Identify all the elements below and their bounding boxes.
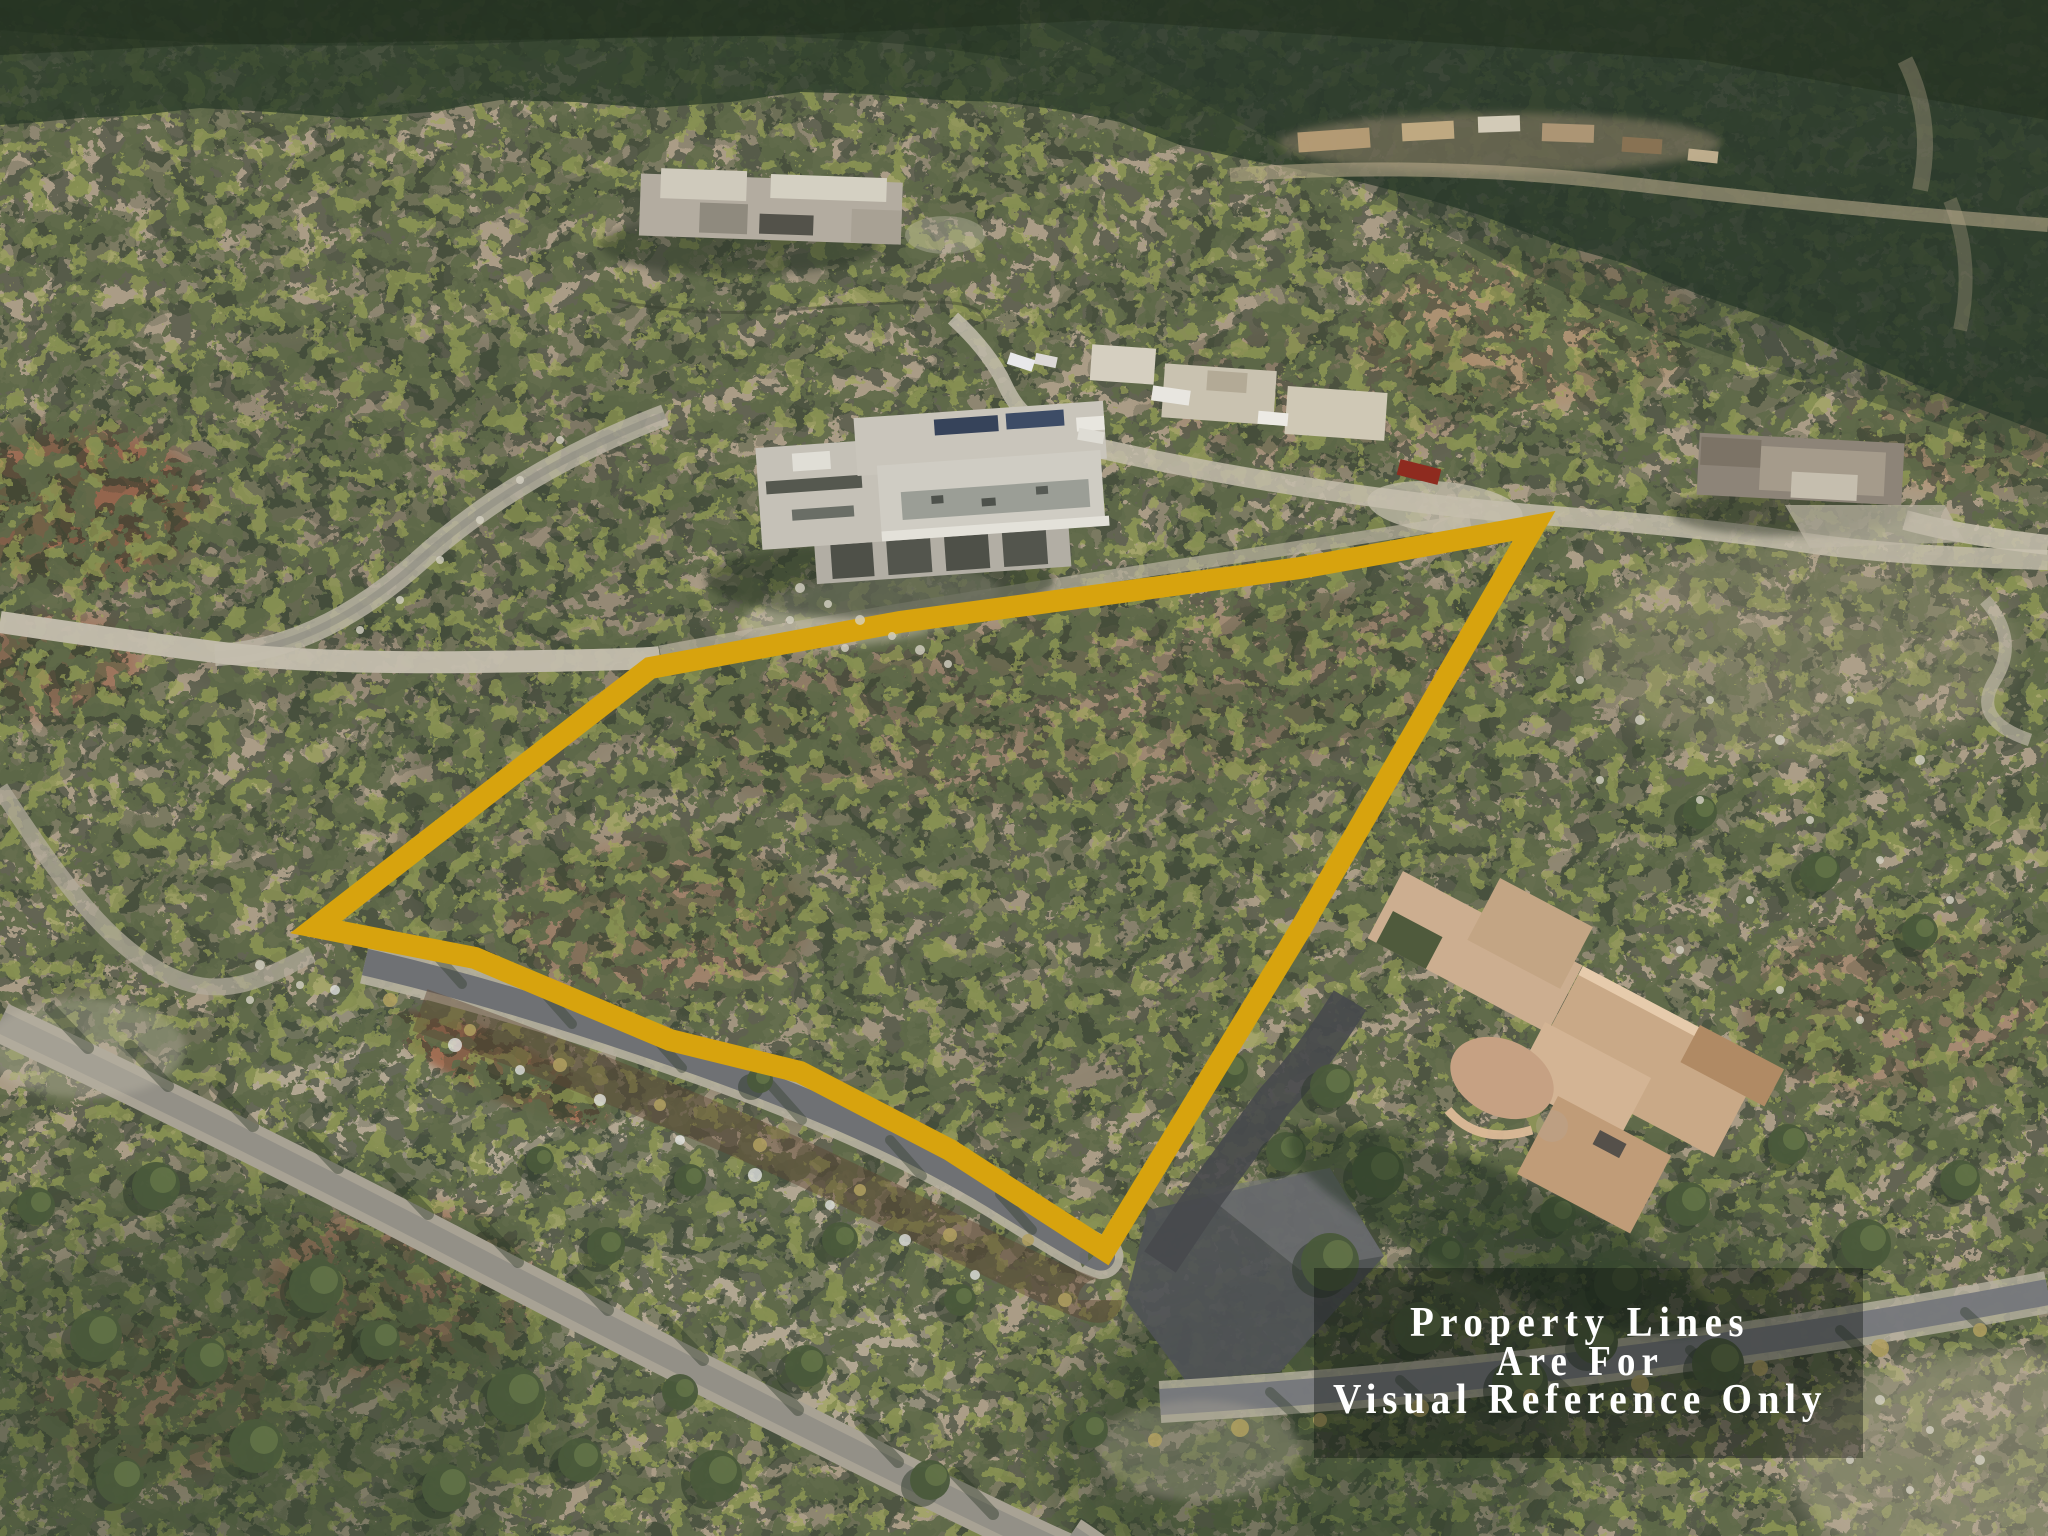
svg-text:Visual Reference Only: Visual Reference Only (1333, 1377, 1827, 1423)
